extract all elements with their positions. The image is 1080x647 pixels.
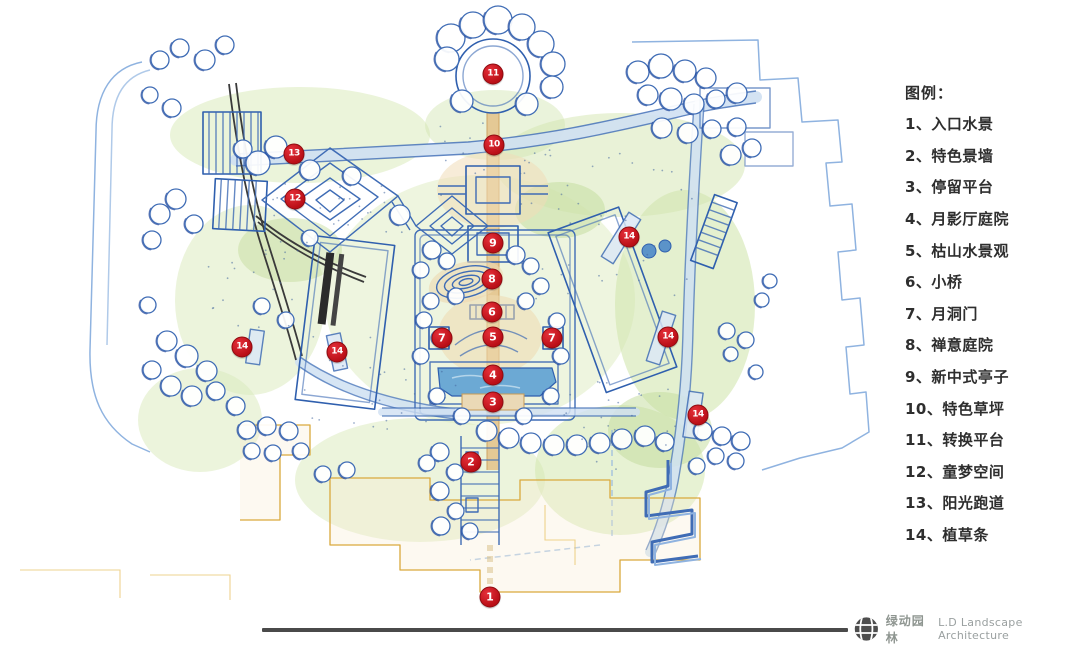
legend-title: 图例： — [905, 78, 1080, 106]
footer-divider-line — [262, 628, 848, 632]
legend-item: 10、特色草坪 — [905, 392, 1080, 424]
landscape-plan-slide: 1 2 3 4 5 6 7 7 8 9 10 11 12 13 14 — [0, 0, 1080, 647]
brand: 绿动园林 L.D Landscape Architecture — [853, 613, 1080, 645]
legend-item: 1、入口水景 — [905, 108, 1080, 140]
legend-item: 13、阳光跑道 — [905, 487, 1080, 519]
legend-item: 12、童梦空间 — [905, 456, 1080, 488]
legend-list: 1、入口水景2、特色景墙3、停留平台4、月影厅庭院5、枯山水景观6、小桥7、月洞… — [905, 108, 1080, 550]
legend-item: 14、植草条 — [905, 519, 1080, 551]
legend-item: 8、禅意庭院 — [905, 329, 1080, 361]
legend-item: 7、月洞门 — [905, 298, 1080, 330]
legend-item: 3、停留平台 — [905, 171, 1080, 203]
legend-item: 2、特色景墙 — [905, 140, 1080, 172]
legend-item: 5、枯山水景观 — [905, 234, 1080, 266]
legend-item: 9、新中式亭子 — [905, 361, 1080, 393]
legend: 图例： 1、入口水景2、特色景墙3、停留平台4、月影厅庭院5、枯山水景观6、小桥… — [905, 78, 1080, 550]
brand-name-cn: 绿动园林 — [886, 612, 932, 646]
brand-logo-icon — [853, 614, 880, 644]
brand-name-en: L.D Landscape Architecture — [938, 616, 1080, 642]
legend-item: 11、转换平台 — [905, 424, 1080, 456]
legend-item: 6、小桥 — [905, 266, 1080, 298]
legend-item: 4、月影厅庭院 — [905, 203, 1080, 235]
